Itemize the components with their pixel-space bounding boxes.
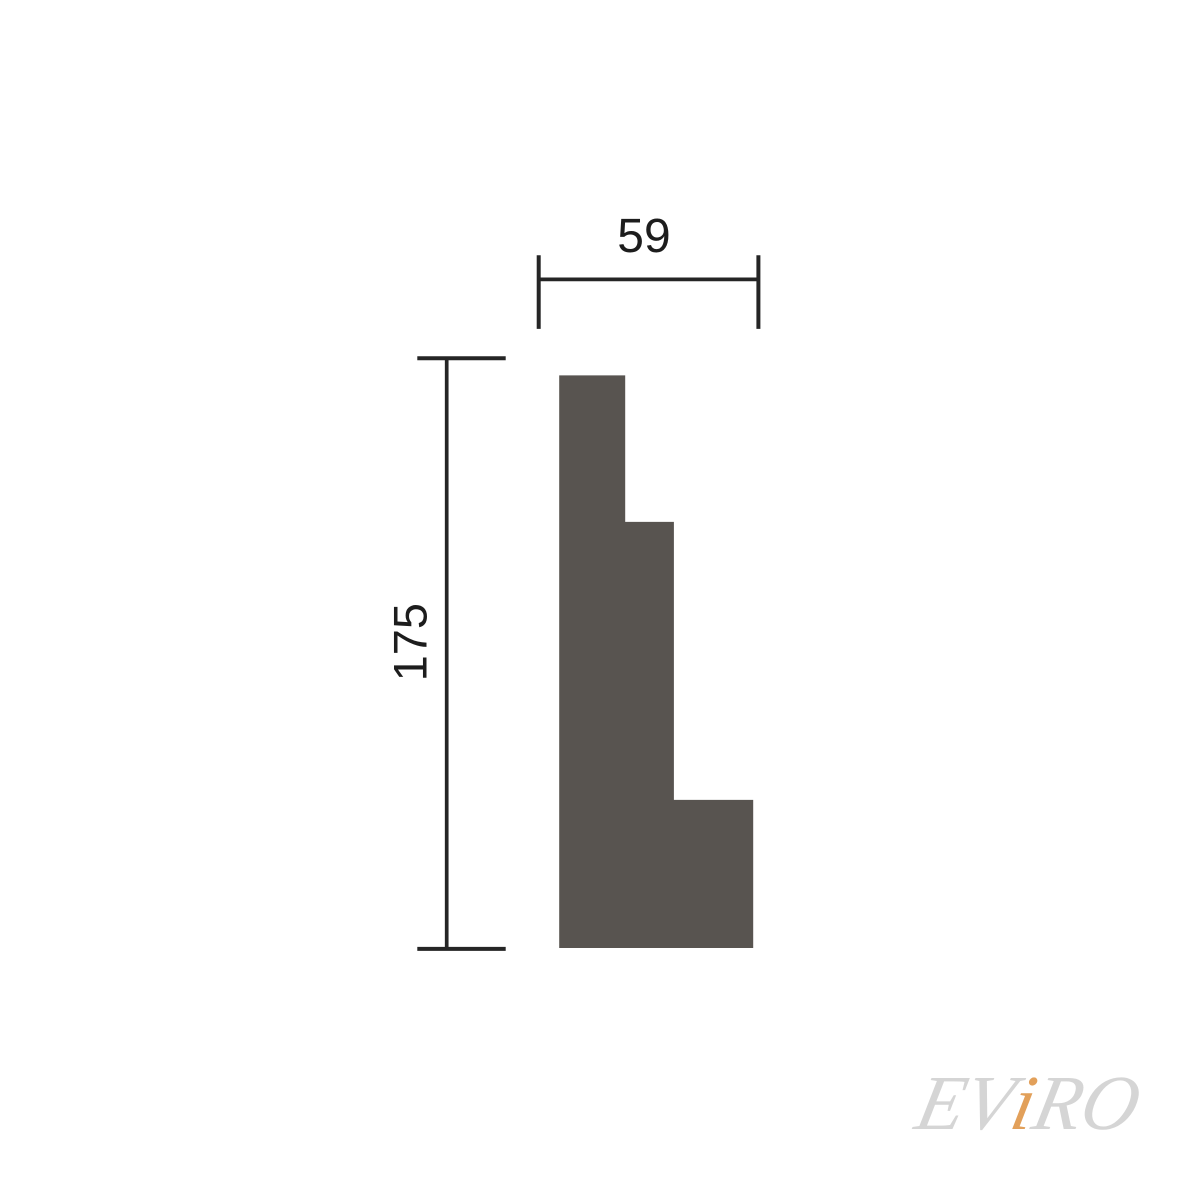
svg-text:175: 175 [384, 603, 437, 681]
svg-text:59: 59 [617, 210, 670, 263]
svg-text:EViRO: EViRO [908, 1061, 1148, 1147]
